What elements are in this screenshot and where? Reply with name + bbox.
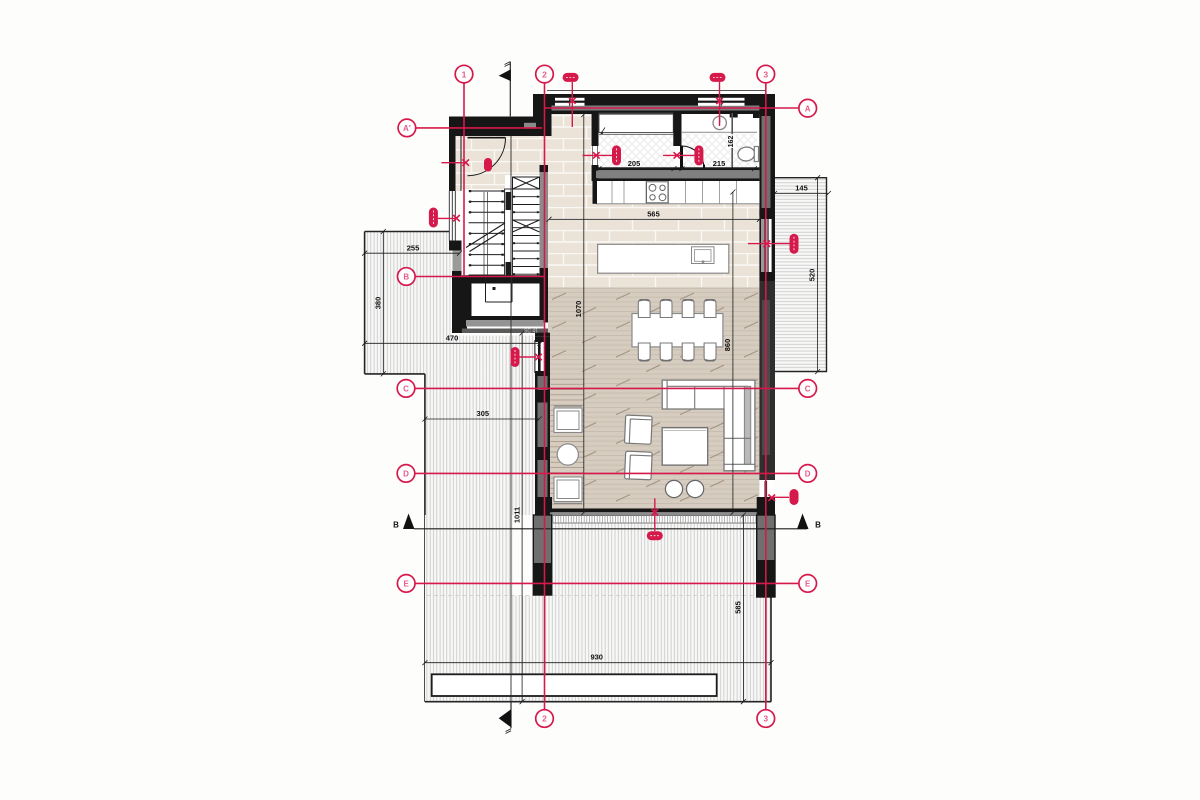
svg-text:B: B [393,521,399,530]
svg-text:255: 255 [407,244,420,253]
svg-text:585: 585 [734,601,743,614]
svg-text:A: A [805,104,811,113]
svg-text:C: C [805,385,811,394]
svg-text:145: 145 [795,184,808,193]
svg-text:B: B [815,521,821,530]
svg-text:2: 2 [542,714,547,724]
svg-text:860: 860 [723,339,732,352]
svg-text:E: E [404,580,410,589]
svg-text:C: C [403,385,409,394]
svg-text:565: 565 [647,210,660,219]
svg-text:215: 215 [713,159,726,168]
svg-text:3: 3 [763,714,768,724]
svg-text:930: 930 [590,653,603,662]
svg-text:520: 520 [808,269,817,282]
svg-text:305: 305 [477,409,490,418]
svg-text:A': A' [403,124,411,133]
svg-text:2: 2 [542,69,547,79]
svg-text:162: 162 [728,136,735,148]
svg-text:470: 470 [446,333,459,342]
svg-text:380: 380 [373,297,382,310]
svg-text:1070: 1070 [574,301,583,318]
svg-text:3: 3 [763,69,768,79]
svg-text:205: 205 [628,159,641,168]
svg-text:D: D [805,470,811,479]
svg-text:E: E [805,580,811,589]
svg-text:1: 1 [462,69,467,79]
svg-text:1011: 1011 [512,507,521,523]
svg-text:B: B [403,273,409,282]
svg-text:D: D [403,470,409,479]
